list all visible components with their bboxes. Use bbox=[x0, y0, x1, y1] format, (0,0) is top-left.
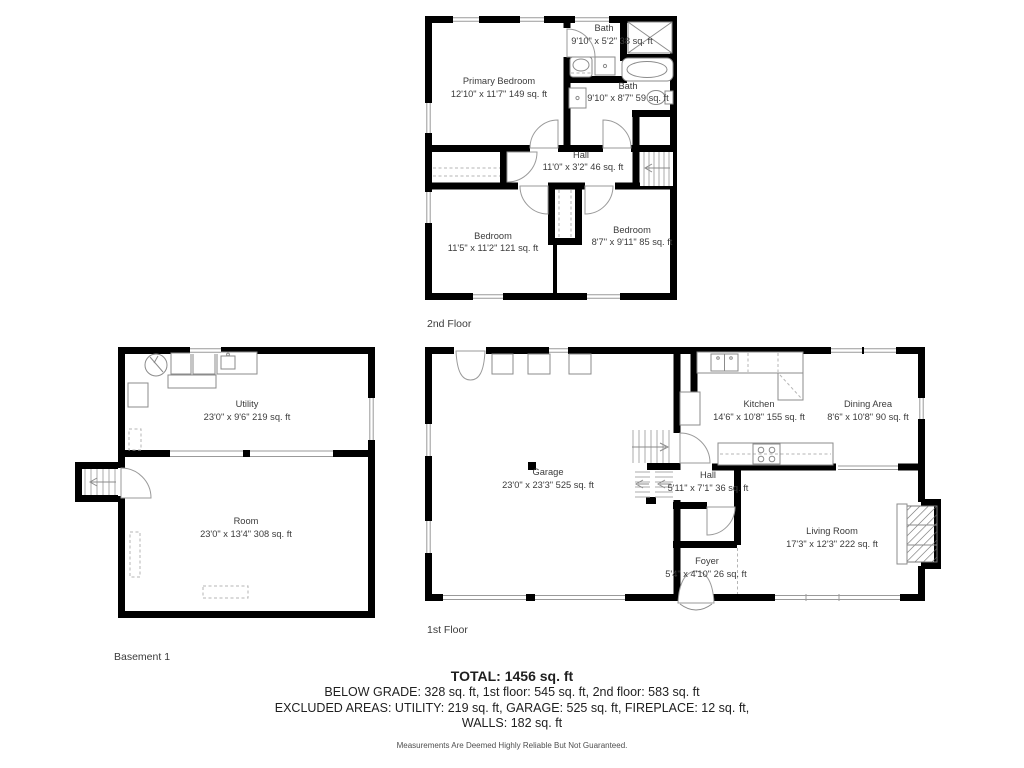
room-label: Bath bbox=[594, 23, 613, 33]
refrigerator-icon bbox=[680, 392, 700, 425]
laundry-tray bbox=[168, 375, 216, 388]
bathtub-icon bbox=[622, 58, 673, 81]
room-label: Primary Bedroom bbox=[463, 76, 536, 86]
room-label: Room bbox=[234, 516, 259, 526]
toilet-icon bbox=[595, 57, 615, 75]
staircase bbox=[85, 469, 116, 495]
room-label: Foyer bbox=[695, 556, 719, 566]
fireplace-icon bbox=[897, 499, 938, 569]
room-label: Bath bbox=[618, 81, 637, 91]
room-dims: 11'5" x 11'2" 121 sq. ft bbox=[448, 243, 539, 253]
grade-areas: BELOW GRADE: 328 sq. ft, 1st floor: 545 … bbox=[0, 685, 1024, 701]
room-label: Hall bbox=[573, 150, 589, 160]
outer-walls bbox=[122, 351, 372, 615]
caption-first-floor: 1st Floor bbox=[427, 624, 468, 636]
storage-box bbox=[492, 354, 513, 374]
room-dims: 8'6" x 10'8" 90 sq. ft bbox=[827, 412, 909, 422]
sink-icon bbox=[570, 57, 592, 77]
room-dims: 12'10" x 11'7" 149 sq. ft bbox=[451, 89, 548, 99]
room-dims: 9'10" x 5'2" 38 sq. ft bbox=[571, 36, 653, 46]
room-label: Bedroom bbox=[613, 225, 651, 235]
room-label: Living Room bbox=[806, 526, 858, 536]
room-dims: 17'3" x 12'3" 222 sq. ft bbox=[786, 539, 878, 549]
room-label: Dining Area bbox=[844, 399, 893, 409]
cabinet bbox=[128, 383, 148, 407]
room-dims: 9'10" x 8'7" 59 sq. ft bbox=[587, 93, 669, 103]
floorplan-second-floor: Bath 9'10" x 5'2" 38 sq. ft Primary Bedr… bbox=[425, 16, 677, 300]
room-dims: 14'6" x 10'8" 155 sq. ft bbox=[713, 412, 805, 422]
floorplan-basement: Utility 23'0" x 9'6" 219 sq. ft Room 23'… bbox=[75, 347, 375, 615]
room-dims: 5'11" x 7'1" 36 sq. ft bbox=[668, 483, 749, 493]
room-dims: 11'0" x 3'2" 46 sq. ft bbox=[543, 162, 624, 172]
garage-door bbox=[443, 594, 625, 601]
room-label: Bedroom bbox=[474, 231, 512, 241]
sink-icon bbox=[217, 352, 257, 374]
disclaimer: Measurements Are Deemed Highly Reliable … bbox=[0, 741, 1024, 750]
room-dims: 23'0" x 13'4" 308 sq. ft bbox=[200, 529, 292, 539]
walls-area: WALLS: 182 sq. ft bbox=[0, 716, 1024, 732]
storage-box bbox=[569, 354, 591, 374]
floorplan-page: Bath 9'10" x 5'2" 38 sq. ft Primary Bedr… bbox=[0, 0, 1024, 768]
room-dims: 5'4" x 4'10" 26 sq. ft bbox=[665, 569, 747, 579]
storage-box bbox=[528, 354, 550, 374]
washer-icon bbox=[171, 353, 191, 374]
dryer-icon bbox=[193, 353, 215, 374]
caption-second-floor: 2nd Floor bbox=[427, 318, 471, 330]
room-label: Kitchen bbox=[743, 399, 774, 409]
room-dims: 23'0" x 23'3" 525 sq. ft bbox=[502, 480, 594, 490]
room-label: Garage bbox=[532, 467, 563, 477]
area-summary: TOTAL: 1456 sq. ft BELOW GRADE: 328 sq. … bbox=[0, 668, 1024, 750]
floorplan-first-floor: Garage 23'0" x 23'3" 525 sq. ft Kitchen … bbox=[425, 347, 938, 610]
room-dims: 23'0" x 9'6" 219 sq. ft bbox=[204, 412, 291, 422]
vanity-icon bbox=[569, 88, 586, 108]
excluded-areas: EXCLUDED AREAS: UTILITY: 219 sq. ft, GAR… bbox=[0, 701, 1024, 717]
caption-basement: Basement 1 bbox=[114, 651, 170, 663]
staircase bbox=[640, 152, 673, 186]
total-area: TOTAL: 1456 sq. ft bbox=[0, 668, 1024, 685]
room-label: Hall bbox=[700, 470, 716, 480]
counter bbox=[697, 352, 803, 373]
room-label: Utility bbox=[236, 399, 259, 409]
water-heater-icon bbox=[145, 354, 167, 376]
room-dims: 8'7" x 9'11" 85 sq. ft bbox=[592, 237, 673, 247]
